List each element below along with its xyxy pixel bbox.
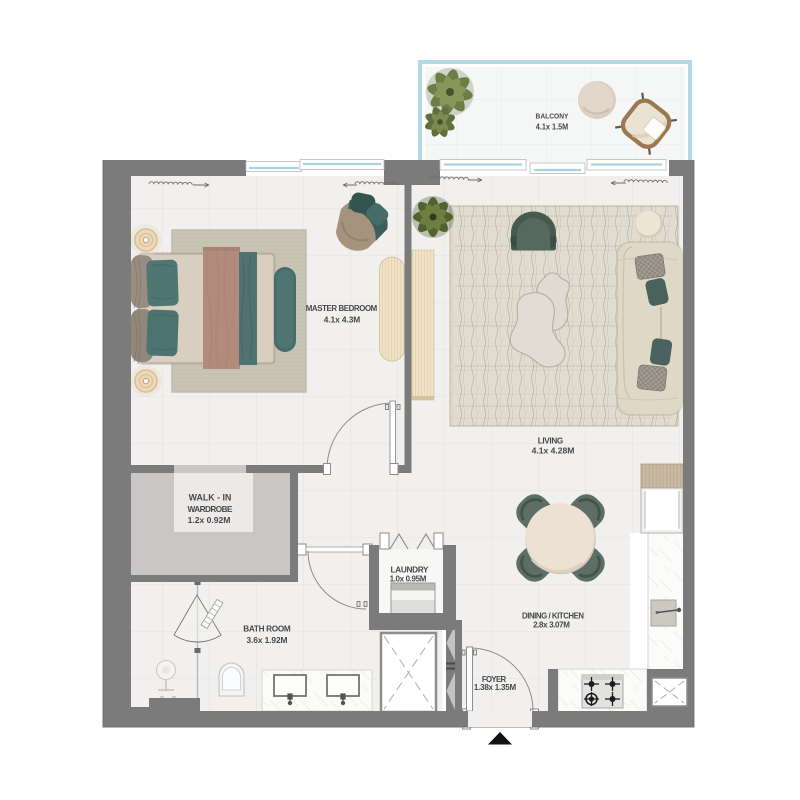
svg-text:1.38x 1.35M: 1.38x 1.35M [474, 683, 517, 692]
svg-text:2.8x 3.07M: 2.8x 3.07M [533, 621, 570, 630]
svg-text:1.2x 0.92M: 1.2x 0.92M [188, 515, 231, 525]
svg-text:3.6x 1.92M: 3.6x 1.92M [247, 635, 288, 645]
svg-text:4.1x 4.3M: 4.1x 4.3M [324, 315, 361, 325]
svg-text:4.1x 4.28M: 4.1x 4.28M [532, 446, 575, 456]
svg-text:4.1x 1.5M: 4.1x 1.5M [536, 123, 569, 132]
svg-text:LIVING: LIVING [538, 437, 564, 446]
svg-text:LAUNDRY: LAUNDRY [391, 566, 430, 575]
svg-text:1.0x 0.95M: 1.0x 0.95M [390, 575, 427, 584]
svg-text:BATH ROOM: BATH ROOM [243, 625, 291, 634]
svg-text:MASTER BEDROOM: MASTER BEDROOM [306, 304, 378, 313]
svg-text:DINING / KITCHEN: DINING / KITCHEN [522, 612, 584, 621]
svg-text:BALCONY: BALCONY [536, 112, 569, 121]
svg-text:WALK - IN: WALK - IN [189, 493, 232, 503]
svg-text:WARDROBE: WARDROBE [188, 505, 234, 514]
